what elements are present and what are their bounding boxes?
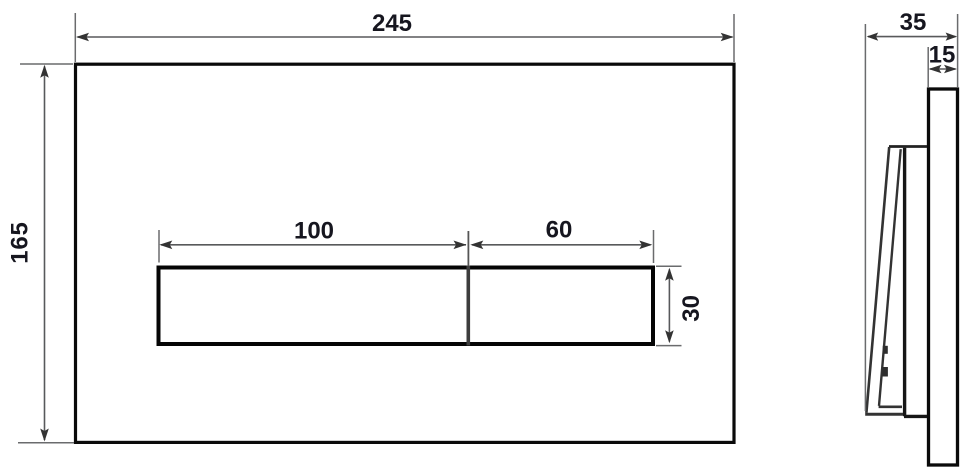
svg-text:165: 165 (7, 221, 34, 263)
svg-text:100: 100 (294, 218, 334, 245)
svg-text:35: 35 (900, 9, 927, 36)
svg-text:15: 15 (929, 42, 956, 69)
svg-text:60: 60 (546, 217, 573, 244)
svg-text:30: 30 (678, 295, 705, 322)
svg-text:245: 245 (372, 10, 412, 37)
